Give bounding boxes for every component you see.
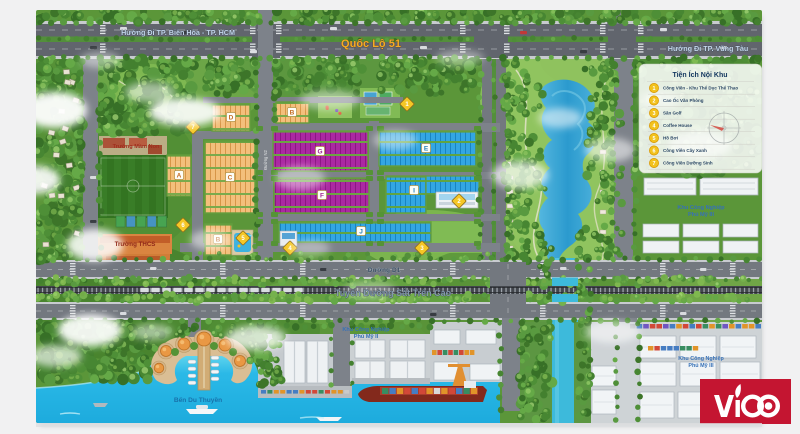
svg-text:3: 3	[653, 111, 656, 117]
svg-text:Coffee House: Coffee House	[663, 123, 693, 128]
svg-text:1: 1	[653, 86, 656, 92]
svg-text:Tiện Ích Nội Khu: Tiện Ích Nội Khu	[672, 70, 727, 79]
svg-text:4: 4	[653, 124, 656, 130]
svg-text:Công Viên - Khu Thể Dục Thể Th: Công Viên - Khu Thể Dục Thể Thao	[663, 85, 738, 91]
svg-text:7: 7	[653, 161, 656, 167]
svg-text:6: 6	[653, 149, 656, 155]
svg-text:Cao Ốc Văn Phòng: Cao Ốc Văn Phòng	[663, 97, 704, 103]
svg-text:Sân Golf: Sân Golf	[663, 111, 682, 116]
svg-text:Công Viên Cây Xanh: Công Viên Cây Xanh	[663, 148, 707, 153]
svg-text:Hồ Bơi: Hồ Bơi	[663, 136, 678, 141]
svg-text:5: 5	[653, 136, 656, 142]
svg-text:2: 2	[653, 99, 656, 105]
svg-text:Công Viên Dưỡng Sinh: Công Viên Dưỡng Sinh	[663, 161, 713, 166]
